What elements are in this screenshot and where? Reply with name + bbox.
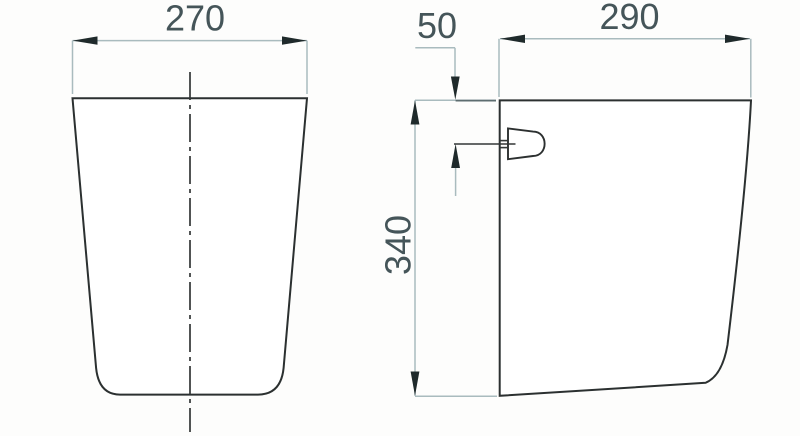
svg-text:290: 290 xyxy=(599,0,659,37)
svg-text:270: 270 xyxy=(165,0,225,39)
svg-text:50: 50 xyxy=(417,5,457,46)
svg-text:340: 340 xyxy=(378,215,419,275)
